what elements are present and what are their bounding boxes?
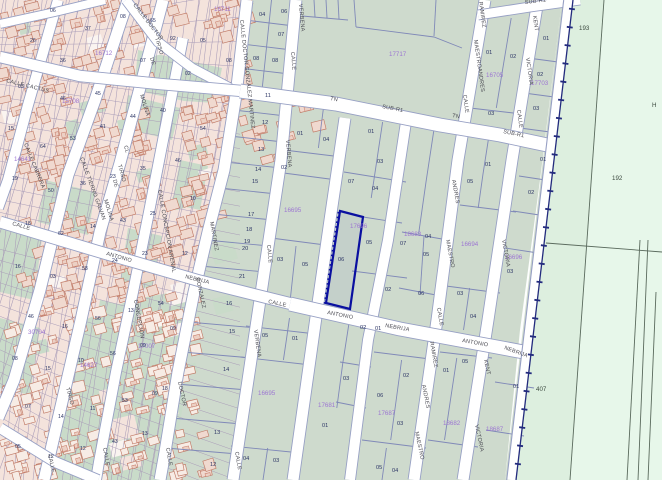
svg-text:10: 10 (190, 196, 196, 202)
svg-text:17: 17 (248, 212, 254, 218)
svg-text:14: 14 (58, 414, 64, 420)
svg-text:13: 13 (128, 308, 134, 314)
svg-text:36: 36 (60, 58, 66, 64)
svg-text:01: 01 (486, 50, 492, 56)
svg-text:56: 56 (95, 316, 101, 322)
svg-text:46: 46 (175, 158, 181, 164)
svg-text:04: 04 (470, 314, 476, 320)
svg-text:53: 53 (122, 398, 128, 404)
svg-text:12: 12 (182, 251, 188, 257)
svg-text:12: 12 (80, 446, 86, 452)
svg-text:46: 46 (28, 314, 34, 320)
svg-text:04: 04 (372, 186, 378, 192)
svg-text:30704: 30704 (28, 329, 46, 336)
svg-text:43: 43 (112, 439, 118, 445)
svg-text:05: 05 (262, 333, 268, 339)
svg-text:07: 07 (25, 404, 31, 410)
svg-text:15: 15 (252, 179, 258, 185)
svg-text:50: 50 (48, 188, 54, 194)
svg-text:19: 19 (244, 239, 250, 245)
svg-text:06: 06 (338, 257, 344, 263)
svg-text:03: 03 (488, 111, 494, 117)
svg-text:54: 54 (158, 301, 164, 307)
svg-text:58: 58 (82, 266, 88, 272)
svg-text:43: 43 (120, 218, 126, 224)
svg-text:11: 11 (90, 406, 95, 412)
svg-text:16: 16 (226, 301, 232, 307)
svg-text:44: 44 (130, 114, 136, 120)
svg-text:02: 02 (360, 325, 366, 331)
svg-text:03: 03 (377, 159, 383, 165)
svg-text:192: 192 (612, 175, 623, 182)
svg-text:23: 23 (142, 251, 148, 257)
svg-text:13: 13 (142, 431, 148, 437)
svg-text:04: 04 (425, 234, 431, 240)
svg-text:05: 05 (423, 252, 429, 258)
svg-text:02: 02 (510, 54, 516, 60)
svg-text:16694: 16694 (461, 241, 479, 248)
svg-text:H: H (652, 102, 656, 109)
svg-text:10: 10 (78, 358, 84, 364)
svg-text:03: 03 (273, 458, 279, 464)
svg-text:18: 18 (246, 227, 252, 233)
svg-text:15: 15 (229, 329, 235, 335)
svg-text:06: 06 (377, 393, 383, 399)
svg-text:11: 11 (265, 93, 271, 99)
svg-text:13: 13 (258, 147, 264, 153)
svg-text:16: 16 (62, 324, 68, 330)
svg-text:07: 07 (278, 32, 284, 38)
svg-text:193: 193 (579, 25, 590, 32)
svg-text:12: 12 (210, 462, 216, 468)
svg-text:12: 12 (262, 120, 268, 126)
svg-text:08: 08 (226, 58, 232, 64)
svg-text:04: 04 (323, 137, 329, 143)
svg-text:46: 46 (60, 96, 66, 102)
svg-text:62: 62 (58, 231, 64, 237)
svg-text:16712: 16712 (95, 50, 113, 57)
svg-text:09: 09 (140, 343, 146, 349)
svg-text:45: 45 (95, 91, 101, 97)
svg-text:17717: 17717 (389, 51, 407, 58)
svg-text:15: 15 (8, 126, 14, 132)
svg-text:16711: 16711 (214, 6, 231, 13)
svg-text:01: 01 (375, 326, 381, 332)
svg-text:05: 05 (200, 38, 206, 44)
svg-text:03: 03 (50, 274, 56, 280)
svg-text:03: 03 (507, 269, 513, 275)
svg-text:05: 05 (467, 179, 473, 185)
svg-text:26: 26 (30, 38, 36, 44)
svg-text:01: 01 (540, 157, 546, 163)
svg-text:05: 05 (462, 359, 468, 365)
svg-text:03: 03 (277, 257, 283, 263)
svg-text:02: 02 (185, 71, 191, 77)
svg-text:25: 25 (150, 211, 156, 217)
svg-text:03: 03 (397, 421, 403, 427)
svg-text:01: 01 (443, 368, 449, 374)
svg-text:37: 37 (85, 26, 91, 32)
svg-text:14: 14 (223, 367, 229, 373)
svg-text:07: 07 (140, 58, 146, 64)
svg-text:08: 08 (272, 58, 278, 64)
svg-text:02: 02 (537, 72, 543, 78)
svg-text:14: 14 (255, 167, 261, 173)
svg-text:01: 01 (322, 423, 328, 429)
svg-text:06: 06 (418, 291, 424, 297)
svg-text:01: 01 (485, 162, 491, 168)
svg-text:05: 05 (15, 444, 21, 450)
svg-text:16: 16 (15, 264, 21, 270)
svg-text:407: 407 (536, 386, 547, 393)
svg-text:09: 09 (152, 391, 158, 397)
svg-text:01: 01 (513, 384, 519, 390)
svg-text:02: 02 (403, 373, 409, 379)
svg-text:07: 07 (400, 241, 406, 247)
svg-text:06: 06 (281, 9, 287, 15)
svg-text:18687: 18687 (486, 426, 504, 433)
svg-text:14: 14 (90, 224, 96, 230)
svg-text:13: 13 (214, 430, 220, 436)
svg-text:04: 04 (259, 12, 265, 18)
svg-text:92: 92 (170, 36, 176, 42)
svg-text:05: 05 (366, 240, 372, 246)
svg-text:17687: 17687 (378, 410, 396, 417)
svg-text:01: 01 (543, 36, 549, 42)
svg-text:35: 35 (140, 166, 146, 172)
svg-text:41: 41 (100, 124, 106, 130)
svg-text:08: 08 (12, 356, 18, 362)
svg-text:21: 21 (239, 274, 245, 280)
svg-text:01: 01 (297, 131, 303, 137)
svg-text:16705: 16705 (486, 72, 504, 79)
svg-text:56: 56 (110, 351, 116, 357)
svg-text:05: 05 (302, 262, 308, 268)
svg-text:53: 53 (70, 136, 76, 142)
svg-text:18682: 18682 (443, 420, 461, 427)
svg-text:01: 01 (368, 129, 374, 135)
svg-text:15: 15 (45, 366, 51, 372)
svg-text:54: 54 (200, 126, 206, 132)
svg-text:07: 07 (348, 179, 354, 185)
svg-text:08: 08 (253, 56, 259, 62)
svg-text:09: 09 (170, 326, 176, 332)
svg-text:03: 03 (343, 376, 349, 382)
svg-text:04: 04 (392, 468, 398, 474)
svg-text:06: 06 (50, 8, 56, 14)
svg-text:17696: 17696 (350, 223, 368, 230)
svg-text:16695: 16695 (284, 207, 302, 214)
svg-text:05: 05 (376, 465, 382, 471)
svg-text:17681: 17681 (318, 402, 336, 409)
svg-text:16695: 16695 (258, 390, 276, 397)
svg-text:64: 64 (40, 144, 46, 150)
svg-text:02: 02 (385, 287, 391, 293)
svg-text:40: 40 (160, 108, 166, 114)
svg-text:03: 03 (457, 291, 463, 297)
svg-text:02: 02 (528, 190, 534, 196)
svg-text:18: 18 (162, 386, 168, 392)
svg-text:01: 01 (292, 336, 298, 342)
svg-text:19: 19 (12, 176, 18, 182)
svg-text:20: 20 (242, 246, 248, 252)
svg-text:36: 36 (80, 181, 86, 187)
svg-text:08: 08 (120, 14, 126, 20)
svg-text:03: 03 (533, 106, 539, 112)
svg-text:18683: 18683 (404, 231, 422, 238)
svg-text:04: 04 (243, 456, 249, 462)
